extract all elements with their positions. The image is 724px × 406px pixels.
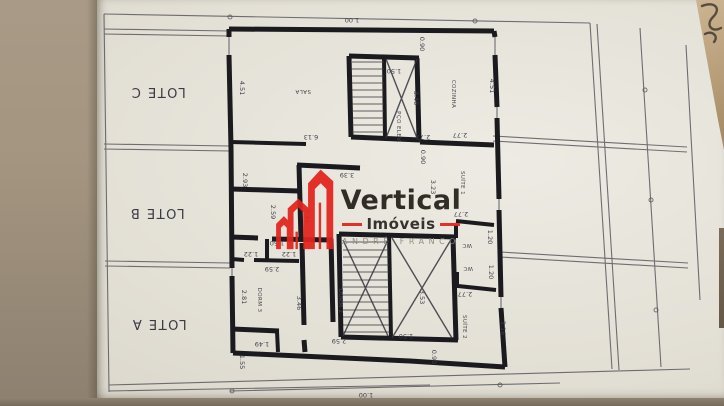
red-dash-left (342, 223, 362, 226)
watermark-logo: Vertical Imóveis ANDRÉ FRANCO (276, 156, 464, 254)
floorplan-photo: LOTE CLOTE BLOTE ASALACOZINHAPÇO ELEV.SU… (0, 0, 724, 406)
logo-agent-name: ANDRÉ FRANCO (338, 237, 464, 246)
buildings-icon (276, 160, 344, 252)
logo-subtitle: Imóveis (366, 215, 435, 233)
red-dash-right (440, 223, 460, 226)
logo-subtitle-row: Imóveis (338, 215, 464, 233)
logo-brand: Vertical (338, 188, 464, 214)
